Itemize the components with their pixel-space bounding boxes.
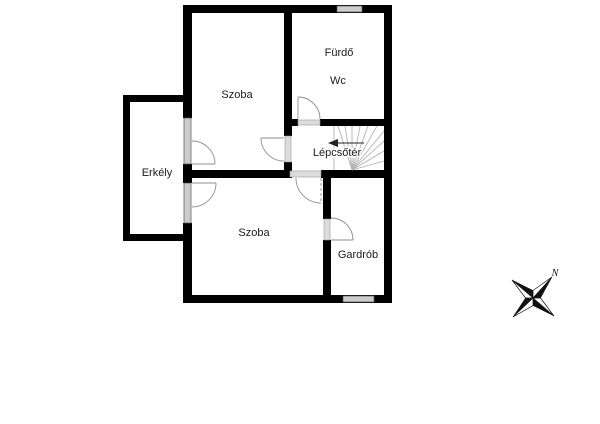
room-label-szoba-lower: Szoba	[238, 227, 270, 239]
window-gardrob-icon	[343, 296, 374, 302]
balcony-wall-bottom	[123, 234, 185, 241]
room-label-erkely: Erkély	[142, 167, 173, 179]
wall-divider-upper	[284, 5, 292, 136]
door-arc-szoba-lower	[296, 178, 321, 203]
door-arc-gardrob	[331, 218, 353, 240]
room-label-gardrob: Gardrób	[338, 249, 378, 261]
room-label-szoba-upper: Szoba	[221, 89, 253, 101]
window-balcony-lower-icon	[184, 183, 191, 223]
window-balcony-upper-icon	[184, 118, 191, 164]
opening-szoba-hall	[285, 136, 291, 162]
compass-north-label: N	[551, 268, 560, 279]
wall-gardrob-lower	[323, 240, 331, 295]
floorplan-svg: N Szoba Fürdő Wc Erkély Lépcsőtér Szoba …	[0, 0, 600, 424]
wall-gardrob-upper	[323, 178, 331, 219]
wall-bath-stub	[292, 119, 298, 126]
stair-direction-arrow-icon	[328, 139, 364, 147]
compass-rose-icon: N	[512, 268, 560, 317]
wall-mid-left	[183, 170, 290, 178]
floorplan-canvas: N Szoba Fürdő Wc Erkély Lépcsőtér Szoba …	[0, 0, 600, 424]
balcony-wall-left	[123, 95, 130, 241]
door-arc-szoba-hall	[261, 138, 284, 161]
room-labels: Szoba Fürdő Wc Erkély Lépcsőtér Szoba Ga…	[142, 47, 378, 261]
opening-gardrob	[324, 219, 330, 240]
room-label-wc: Wc	[330, 75, 346, 87]
door-arc-balcony-lower	[192, 183, 216, 207]
opening-szoba-lower	[290, 171, 321, 177]
wall-right	[384, 5, 392, 303]
room-label-furdo: Fürdő	[325, 47, 354, 59]
wall-mid-right	[321, 170, 392, 178]
balcony-wall-top	[123, 95, 185, 102]
room-label-lepcsoter: Lépcsőtér	[313, 147, 362, 159]
door-arc-bath	[298, 97, 320, 119]
opening-bath	[298, 120, 320, 125]
window-top-bath-icon	[337, 6, 362, 12]
door-arc-balcony-upper	[192, 141, 215, 164]
wall-bath-bottom	[320, 119, 392, 126]
